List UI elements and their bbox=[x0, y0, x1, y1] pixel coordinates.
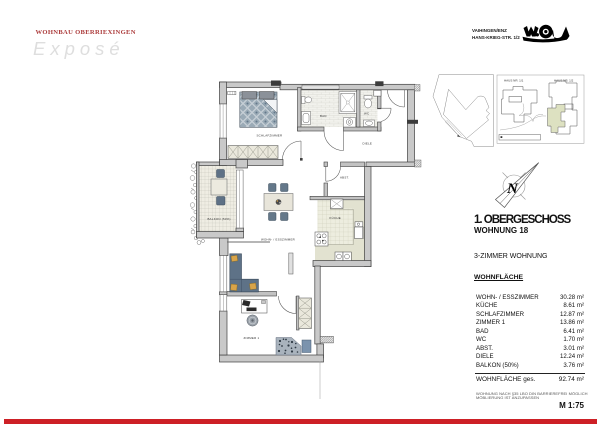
svg-text:BAD: BAD bbox=[320, 114, 327, 118]
svg-text:ZIMMER 1: ZIMMER 1 bbox=[244, 336, 260, 340]
svg-text:ABST.: ABST. bbox=[340, 176, 349, 180]
svg-text:BALKON (50%): BALKON (50%) bbox=[208, 217, 231, 221]
svg-text:DIELE: DIELE bbox=[363, 142, 373, 146]
svg-text:WOHN- / ESSZIMMER: WOHN- / ESSZIMMER bbox=[261, 237, 295, 241]
svg-text:WC: WC bbox=[364, 112, 369, 116]
svg-text:HAUS NR. 1/1: HAUS NR. 1/1 bbox=[504, 78, 524, 82]
svg-text:HAUS NR. 1/2: HAUS NR. 1/2 bbox=[554, 78, 574, 82]
svg-text:SCHLAFZIMMER: SCHLAFZIMMER bbox=[257, 134, 283, 138]
svg-text:N: N bbox=[506, 181, 519, 197]
svg-text:KÜCHE: KÜCHE bbox=[330, 216, 341, 220]
